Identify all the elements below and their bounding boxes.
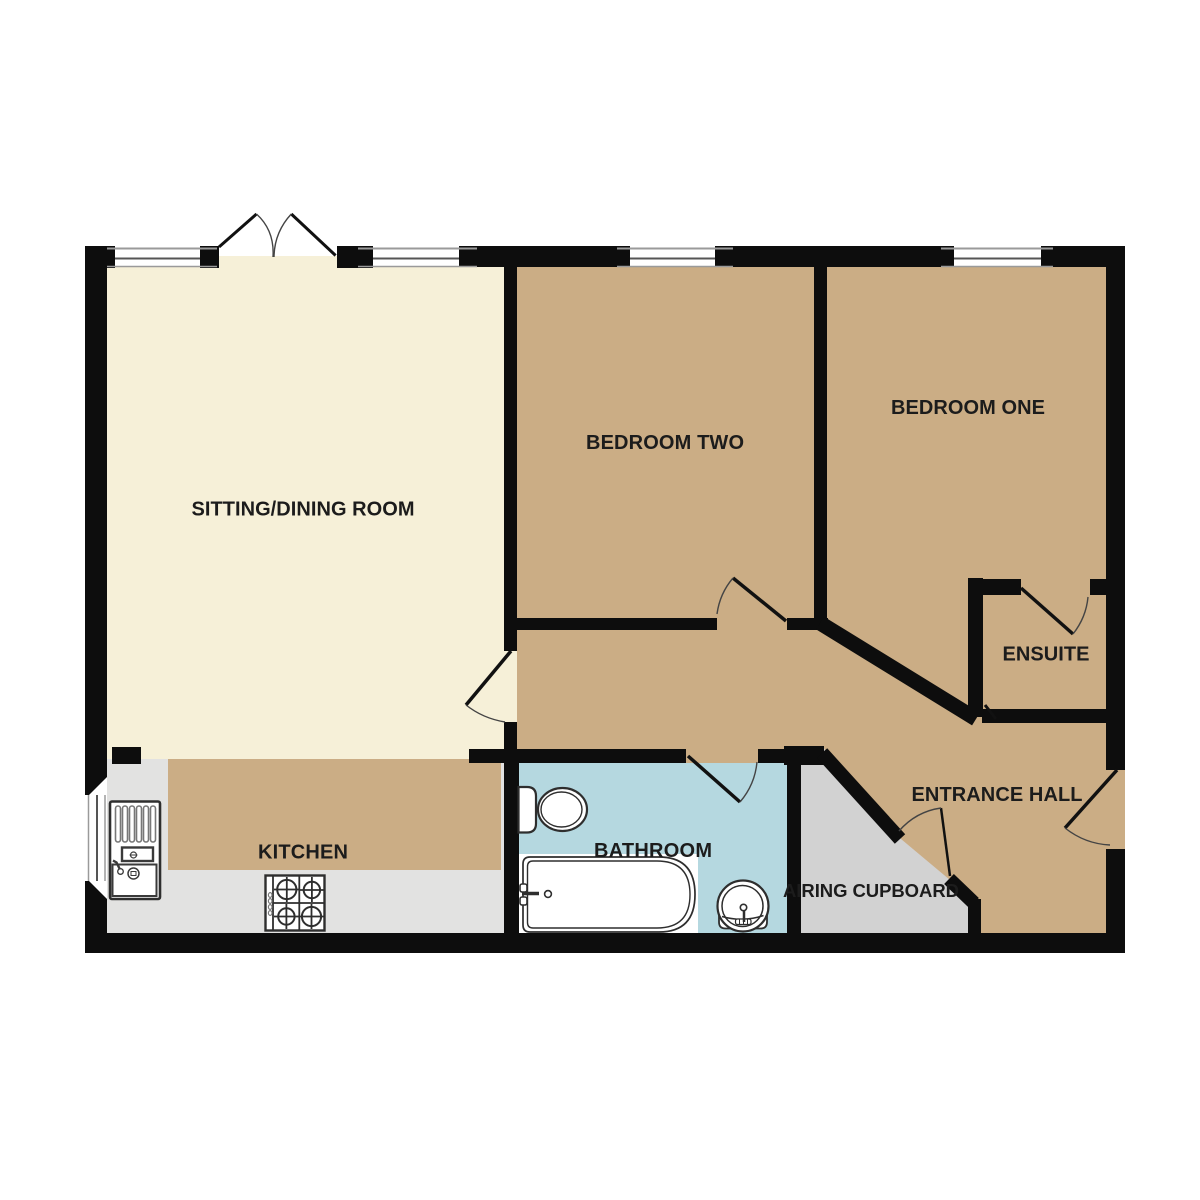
svg-text:BEDROOM ONE: BEDROOM ONE <box>891 397 1045 419</box>
svg-text:ENTRANCE HALL: ENTRANCE HALL <box>912 784 1083 806</box>
svg-text:BATHROOM: BATHROOM <box>594 840 712 862</box>
svg-text:ENSUITE: ENSUITE <box>1003 644 1090 666</box>
svg-text:SITTING/DINING ROOM: SITTING/DINING ROOM <box>192 499 415 521</box>
svg-text:KITCHEN: KITCHEN <box>258 842 348 864</box>
svg-text:AIRING CUPBOARD: AIRING CUPBOARD <box>783 880 959 901</box>
svg-text:BEDROOM TWO: BEDROOM TWO <box>586 432 744 454</box>
